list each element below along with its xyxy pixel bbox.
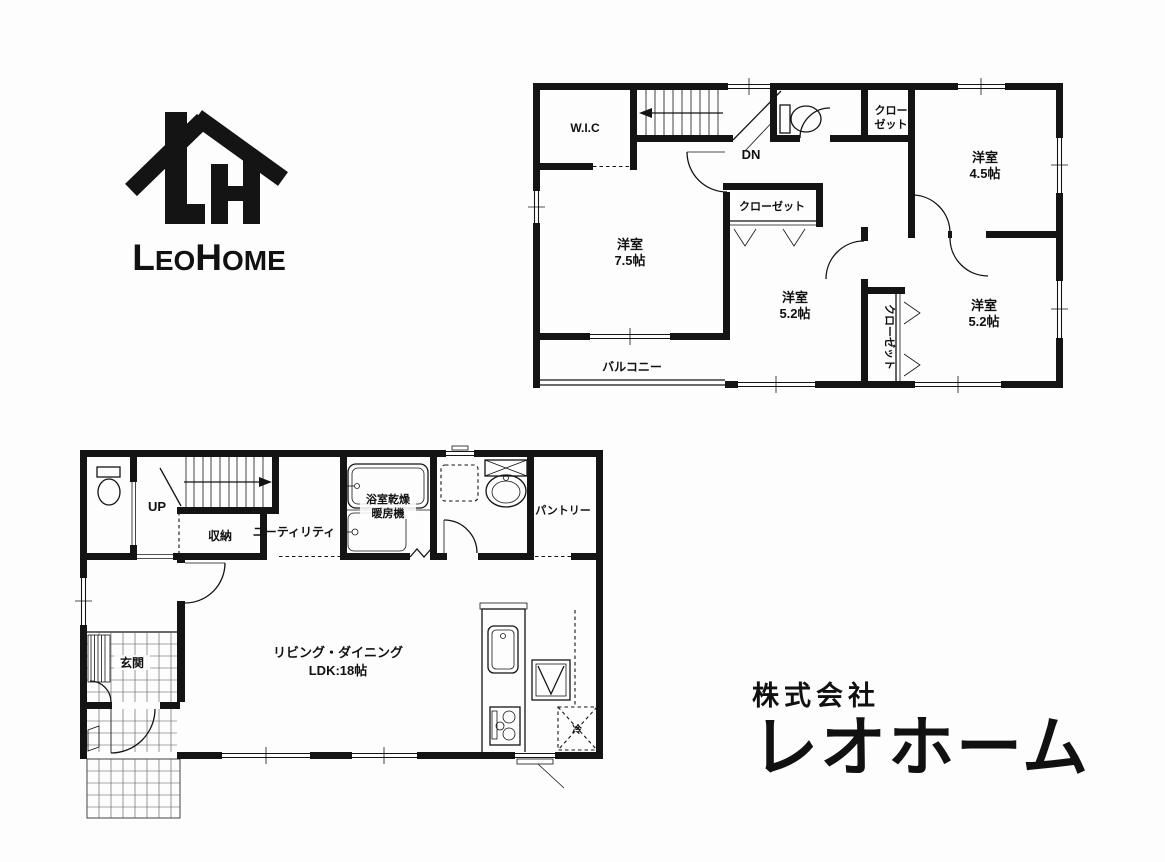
cupboard-1f (532, 660, 570, 700)
label-room75-1: 洋室 (617, 237, 643, 252)
slope-mark (88, 726, 99, 751)
label-dn: DN (742, 147, 761, 162)
label-bath-1: 浴室乾燥 (366, 492, 411, 506)
porch-steps (87, 759, 180, 818)
company-name: レオホーム (752, 714, 1090, 781)
label-entrance: 玄関 (120, 655, 144, 670)
logo-letter-l: L (132, 237, 155, 278)
washroom-1f (441, 460, 527, 507)
floorplan-first-floor: UP 収納 ユーティリティ 浴室乾燥 暖房機 パントリー 玄関 リビング・ダイニ… (80, 450, 605, 825)
label-bath-2: 暖房機 (372, 506, 405, 520)
leohome-house-icon (125, 94, 293, 236)
balcony-railing (540, 380, 725, 385)
label-ldk-2: LDK:18帖 (309, 663, 368, 678)
label-room52c-2: 5.2帖 (779, 306, 810, 321)
closet-side-2f (896, 294, 920, 381)
label-up: UP (148, 499, 166, 514)
label-ldk-1: リビング・ダイニング (273, 645, 403, 660)
toilet-2f (780, 105, 821, 133)
label-wic: W.I.C (570, 121, 600, 135)
stairs-1f (160, 457, 272, 507)
shoe-cabinet (88, 635, 110, 682)
leohome-logo-text: LEOHOME (116, 239, 302, 276)
label-room45-1: 洋室 (972, 150, 998, 165)
label-closet-side: クローゼット (883, 304, 897, 370)
walls-2f (533, 83, 1063, 388)
label-closet-top-2: ゼット (875, 117, 908, 131)
toilet-1f (97, 467, 136, 545)
label-utility: ユーティリティ (253, 525, 336, 539)
label-fridge: 冷 (572, 723, 582, 736)
logo-letter-h: H (195, 237, 222, 278)
room-labels-1f: UP 収納 ユーティリティ 浴室乾燥 暖房機 パントリー 玄関 リビング・ダイニ… (114, 492, 591, 736)
label-room52r-2: 5.2帖 (968, 314, 999, 329)
label-room52r-1: 洋室 (971, 298, 997, 313)
company-name-block: 株式会社 レオホーム (752, 674, 1090, 781)
label-closet-mid: クローゼット (739, 199, 805, 213)
leohome-logo: LEOHOME (116, 94, 302, 276)
kitchen-1f (480, 603, 527, 754)
label-balcony: バルコニー (602, 360, 662, 374)
label-room75-2: 7.5帖 (614, 253, 645, 268)
house-roof (131, 117, 283, 190)
company-prefix: 株式会社 (752, 674, 1090, 713)
label-storage: 収納 (208, 528, 232, 543)
label-room45-2: 4.5帖 (969, 166, 1000, 181)
label-pantry: パントリー (535, 504, 591, 517)
logo-letters-eo: EO (155, 245, 195, 276)
label-room52c-1: 洋室 (782, 290, 808, 305)
closet-mid-2f (730, 221, 816, 246)
logo-letters-ome: OME (222, 245, 286, 276)
floorplan-second-floor: W.I.C DN クロー ゼット 洋室 4.5帖 洋室 7.5帖 クローゼット … (533, 83, 1063, 395)
label-closet-top-1: クロー (875, 104, 908, 117)
